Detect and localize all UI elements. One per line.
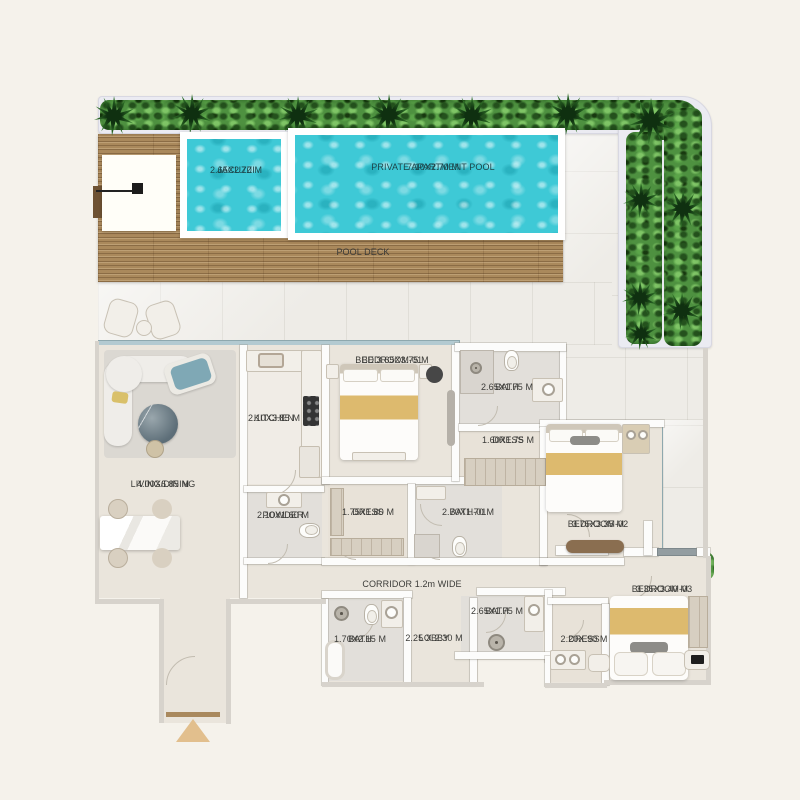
wardrobe (688, 596, 708, 648)
room-dims: 2.10X3.85 M (248, 413, 300, 424)
wall (624, 548, 658, 556)
room-dims: 2.65X1.75 M (481, 382, 533, 393)
washbasin (542, 383, 555, 396)
room-dims: BED 3.65X3.75 M (355, 355, 429, 366)
wall (455, 652, 553, 659)
jacuzzi-water (187, 139, 281, 231)
shower-head (470, 362, 482, 374)
shower-head (488, 634, 505, 651)
bed-bench (352, 452, 406, 461)
wall (644, 521, 652, 555)
wall (548, 598, 608, 604)
terrace-side-table (136, 320, 152, 336)
coffee-table (138, 404, 178, 444)
cooktop (303, 396, 319, 426)
room-dims: 7.10X2.70 M (407, 162, 459, 173)
exterior-wall (703, 348, 708, 558)
dining-table (100, 516, 180, 550)
wall (540, 558, 624, 565)
washbasin (385, 606, 398, 619)
toilet (364, 604, 379, 625)
washbasin (555, 654, 566, 665)
exterior-wall (226, 599, 326, 604)
yellow-cushion (111, 391, 128, 404)
exterior-wall (322, 682, 484, 687)
hedge (626, 132, 662, 344)
pool-water (295, 135, 558, 233)
bathtub (325, 640, 345, 680)
wall (322, 591, 412, 598)
wall (322, 477, 465, 484)
apartment-floor-plan: JACUZZI 2.65X2.70 M PRIVATE APARTMENT PO… (0, 0, 800, 800)
wardrobe (330, 538, 404, 556)
room-dims: 1.60X1.75 M (482, 435, 534, 446)
exterior-wall (545, 683, 607, 688)
room-dims: 2.65X1.75 M (471, 606, 523, 617)
balcony-floor (663, 420, 707, 550)
room-dims: 1.75X1.80 M (342, 507, 394, 518)
room-dims: 2.70X1.70 M (442, 507, 494, 518)
sofa (106, 356, 142, 392)
nightstand (326, 364, 339, 379)
washbasin (278, 494, 290, 506)
shower-head (334, 606, 349, 621)
entry-door-sill (166, 712, 220, 717)
nightstand (588, 654, 610, 672)
ottoman (426, 366, 443, 383)
exterior-wall (226, 603, 231, 724)
bed (340, 364, 418, 460)
wall (602, 604, 609, 685)
room-dims: 2.10X1.60 M (257, 510, 309, 521)
window (657, 548, 699, 556)
umbrella-icon (132, 183, 143, 194)
exterior-wall (159, 599, 164, 723)
bed-bench (566, 540, 624, 553)
lumbar-pillow (570, 436, 600, 445)
washbasin (626, 430, 636, 440)
tv-icon (691, 655, 704, 664)
room-dims: 2.25 X 2.30 M (405, 633, 462, 644)
dining-chair (108, 548, 128, 568)
exterior-wall (95, 341, 99, 603)
pillow (614, 652, 648, 676)
room-dims: 1.70X2.15 M (334, 634, 386, 645)
room-name: POOL DECK (336, 247, 389, 258)
vanity (416, 486, 446, 500)
toilet (299, 523, 320, 538)
room-name: CORRIDOR 1.2m WIDE (362, 579, 461, 590)
tv-console (447, 390, 455, 446)
exterior-wall (95, 599, 163, 604)
room-dims: 3.75X3.35 M (572, 519, 624, 530)
entry-vestibule-floor (160, 598, 230, 723)
pillow (652, 652, 686, 676)
toilet (504, 350, 519, 371)
shower (414, 534, 440, 558)
washbasin (528, 604, 540, 616)
toilet (452, 536, 467, 557)
room-dims: 4.00X6.85 M (137, 479, 189, 490)
washbasin (569, 654, 580, 665)
wall (244, 558, 324, 564)
room-dims: 3.35X3.40 M (636, 584, 688, 595)
kitchen-sink (258, 353, 284, 368)
room-dims: 2.65X2.70 M (210, 165, 262, 176)
exterior-wall (604, 680, 710, 685)
room-dims: 2.20X.90 M (560, 634, 607, 645)
fridge (299, 446, 320, 478)
entry-arrow (176, 719, 210, 742)
washbasin (638, 430, 648, 440)
dining-chair (108, 499, 128, 519)
wardrobe (464, 458, 546, 486)
side-table (146, 440, 164, 458)
